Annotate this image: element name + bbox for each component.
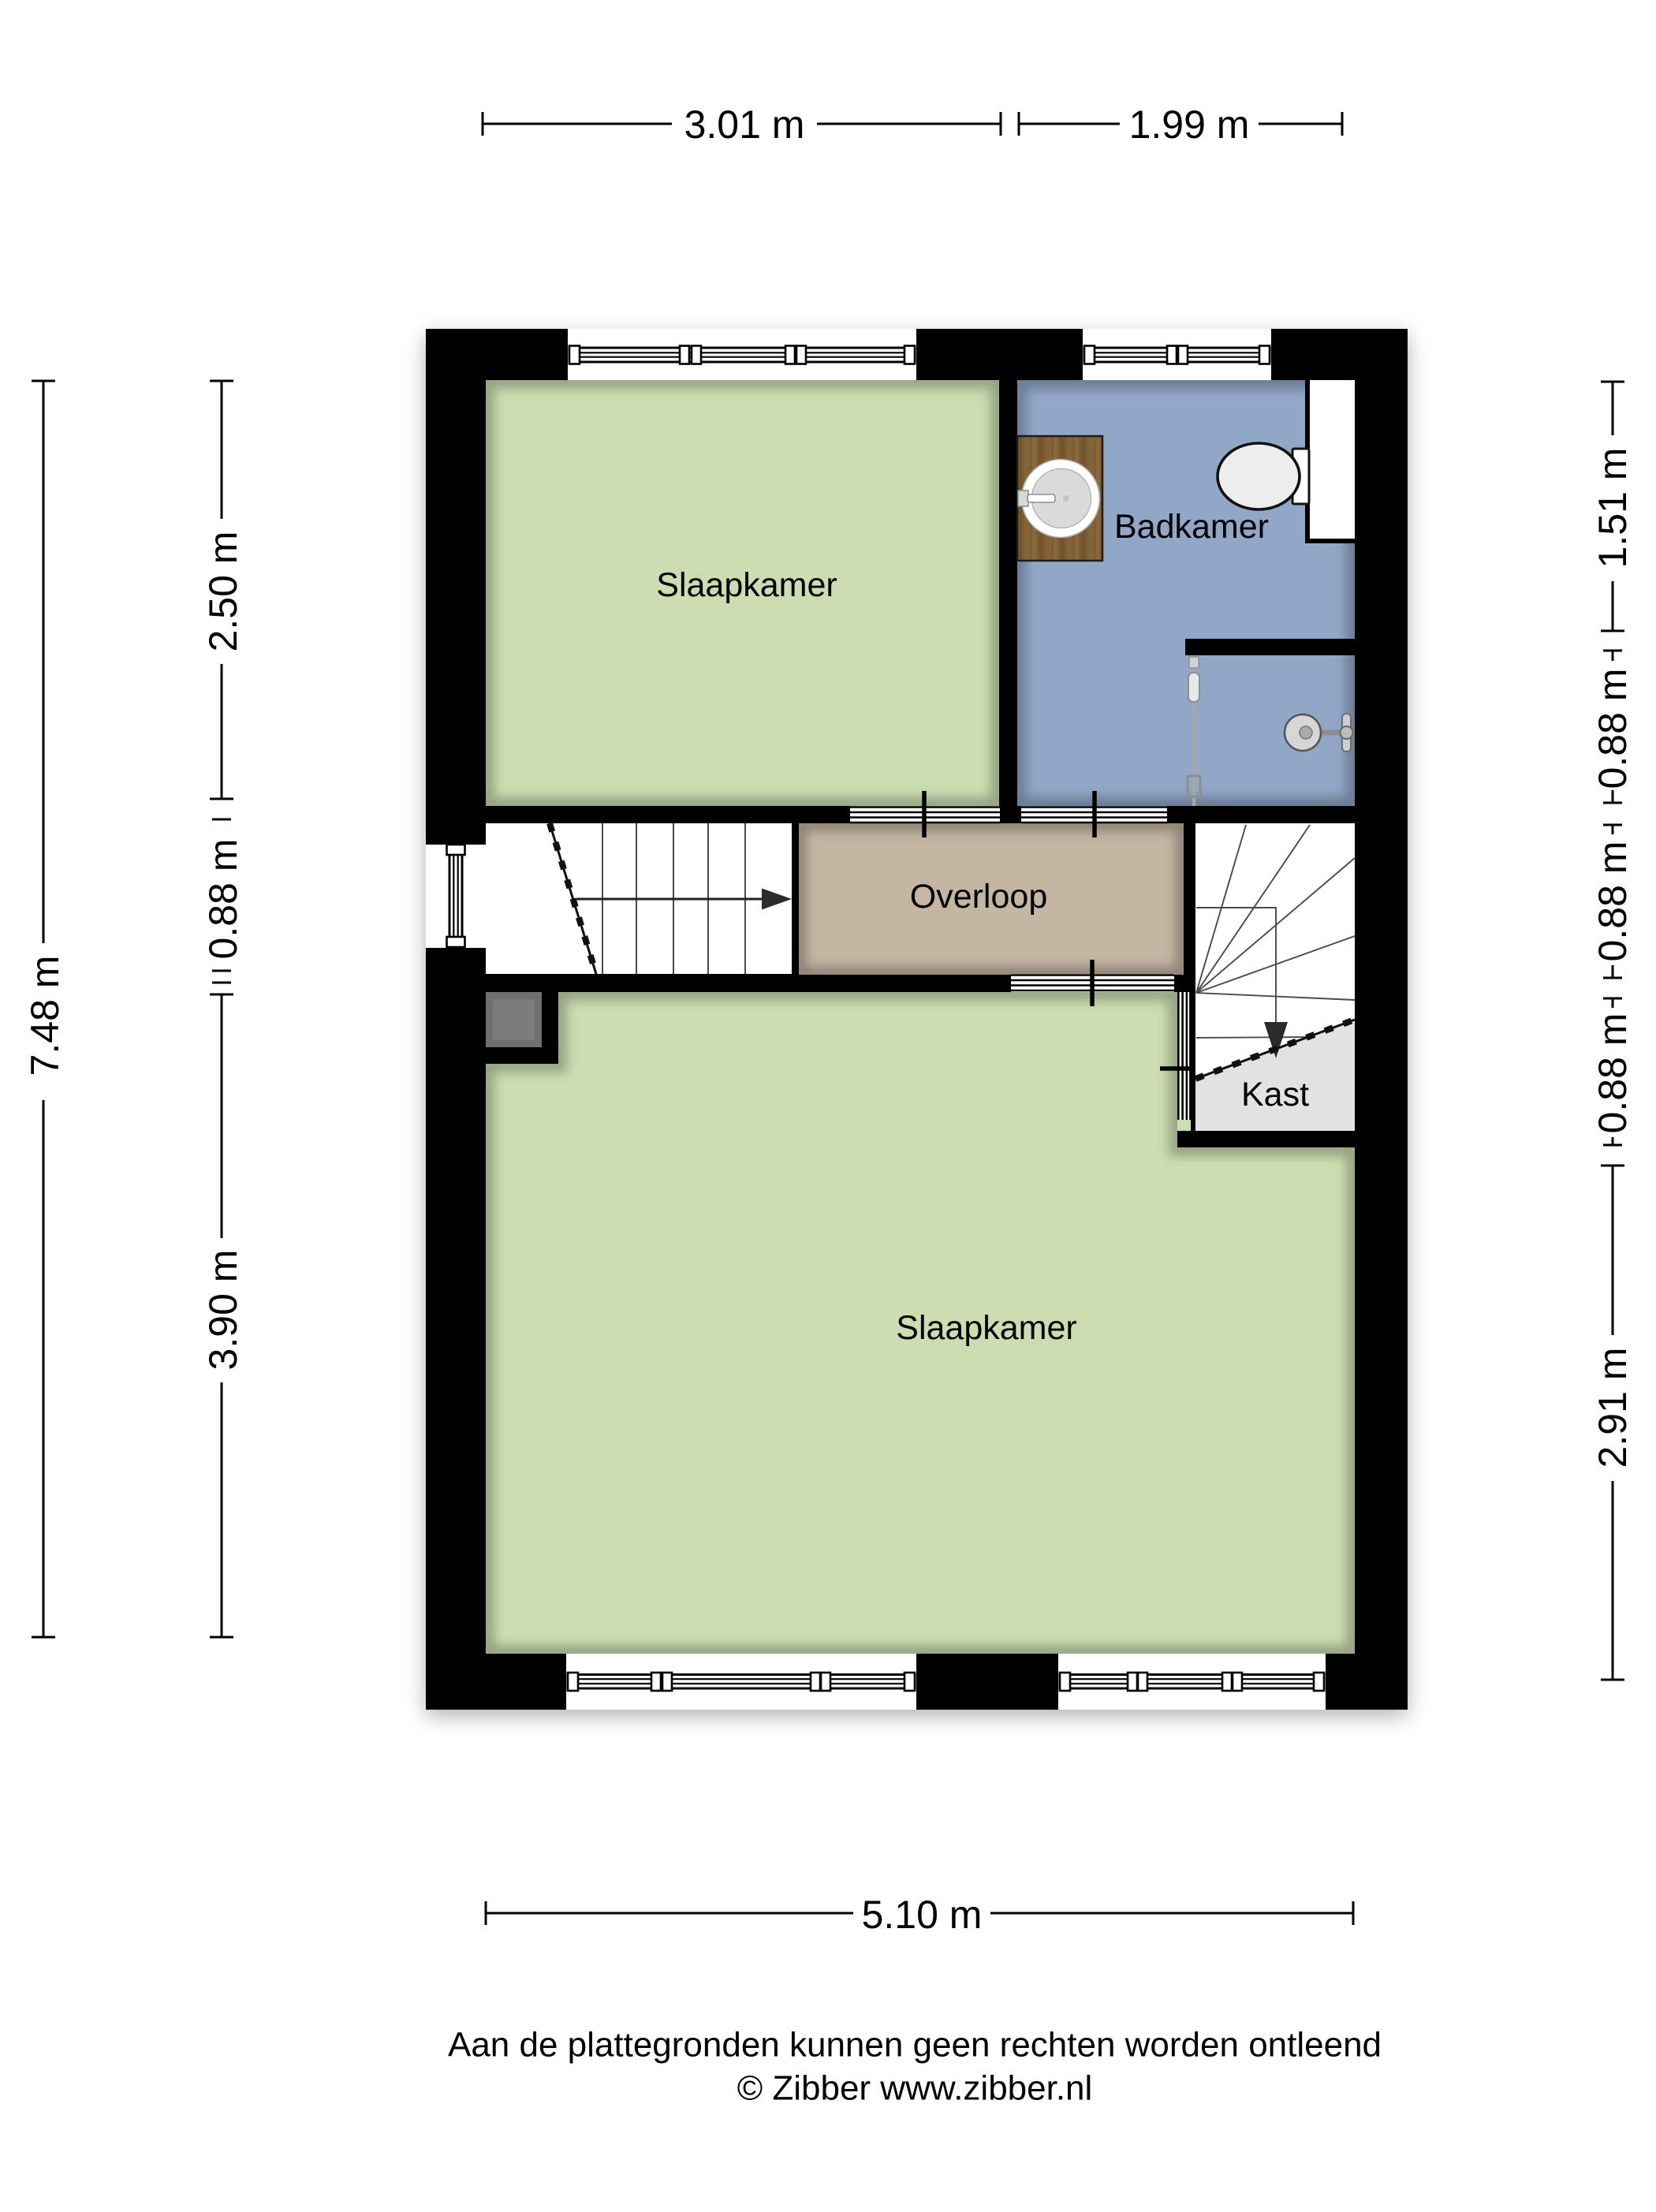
svg-text:1.99 m: 1.99 m xyxy=(1129,103,1250,147)
svg-text:0.88 m: 0.88 m xyxy=(1591,841,1635,962)
svg-text:5.10 m: 5.10 m xyxy=(862,1893,983,1937)
svg-text:2.50 m: 2.50 m xyxy=(201,532,245,652)
svg-text:Aan de plattegronden kunnen ge: Aan de plattegronden kunnen geen rechten… xyxy=(448,2026,1382,2065)
svg-text:0.88 m: 0.88 m xyxy=(201,839,245,960)
svg-text:Slaapkamer: Slaapkamer xyxy=(896,1309,1076,1347)
svg-text:Kast: Kast xyxy=(1241,1076,1309,1113)
svg-text:Slaapkamer: Slaapkamer xyxy=(656,566,837,604)
svg-text:© Zibber www.zibber.nl: © Zibber www.zibber.nl xyxy=(737,2069,1093,2108)
svg-text:7.48 m: 7.48 m xyxy=(23,956,67,1076)
svg-text:1.51 m: 1.51 m xyxy=(1591,448,1635,569)
svg-text:Overloop: Overloop xyxy=(910,878,1047,916)
svg-text:0.88 m: 0.88 m xyxy=(1591,1013,1635,1134)
svg-text:3.90 m: 3.90 m xyxy=(201,1250,245,1371)
svg-text:3.01 m: 3.01 m xyxy=(684,103,805,147)
svg-text:0.88 m: 0.88 m xyxy=(1591,669,1635,789)
svg-text:Badkamer: Badkamer xyxy=(1114,508,1269,546)
svg-text:2.91 m: 2.91 m xyxy=(1591,1348,1635,1468)
